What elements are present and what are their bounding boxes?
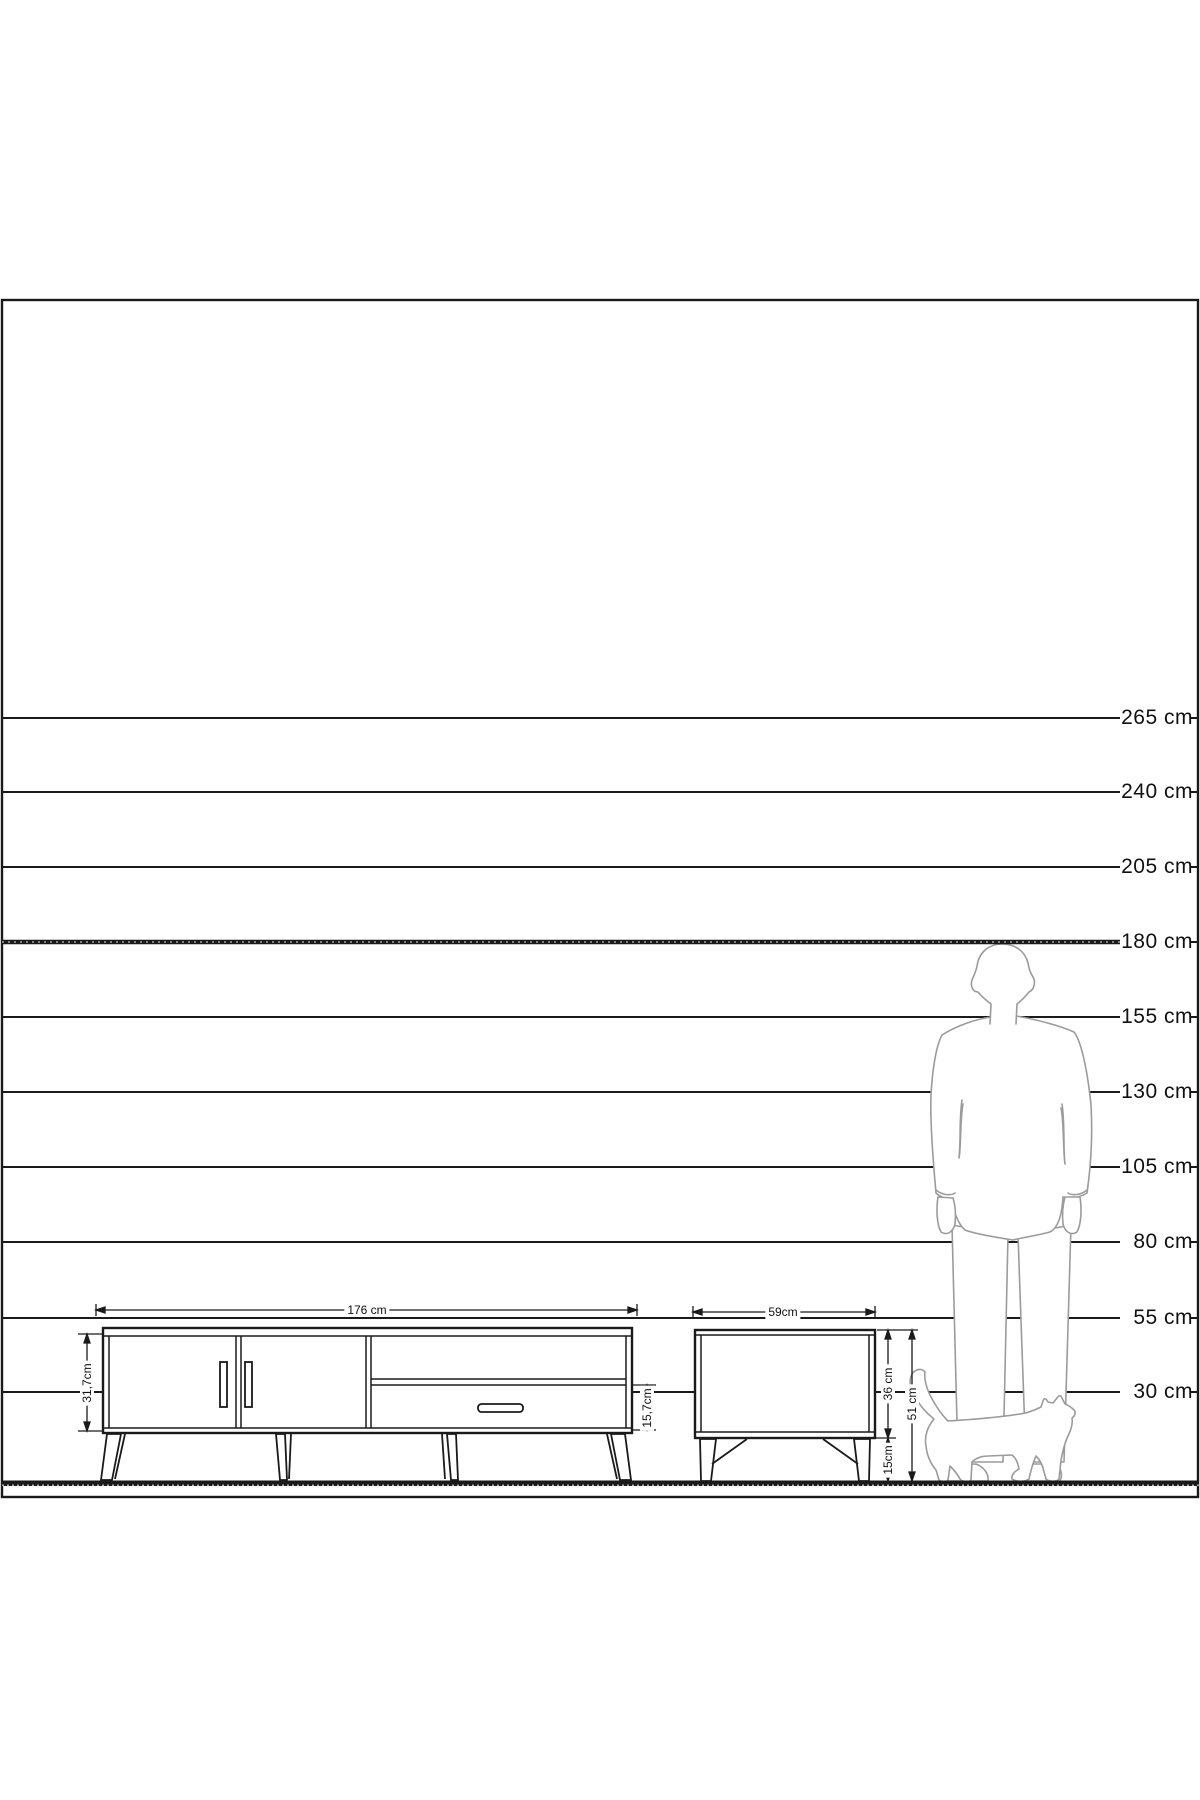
- floor-line: [2, 1481, 1199, 1487]
- side-table-body: [695, 1330, 875, 1438]
- side-table-height-label: 36 cm: [881, 1365, 895, 1404]
- scale-label-205: 205 cm: [1060, 854, 1193, 880]
- man-head: [971, 944, 1034, 1024]
- furniture-dimension-diagram: 265 cm 240 cm 205 cm 180 cm 155 cm 130 c…: [0, 0, 1200, 1800]
- scale-label-105: 105 cm: [1060, 1154, 1193, 1180]
- drawer-handle: [478, 1404, 523, 1412]
- side-table-leg-label: 15cm: [881, 1442, 895, 1477]
- side-table-width-label: 59cm: [765, 1305, 800, 1319]
- tv-stand-drawer-label: 15,7cm: [640, 1385, 654, 1430]
- scale-label-55: 55 cm: [1060, 1305, 1193, 1331]
- scale-label-240: 240 cm: [1060, 779, 1193, 805]
- side-table: [695, 1330, 875, 1481]
- tv-stand-width-label: 176 cm: [344, 1303, 389, 1317]
- tv-stand-height-label: 31,7cm: [80, 1360, 94, 1405]
- door-handle-left: [220, 1362, 227, 1407]
- tv-stand: [101, 1328, 632, 1480]
- scale-label-30: 30 cm: [1060, 1379, 1193, 1405]
- scale-label-80: 80 cm: [1060, 1229, 1193, 1255]
- tv-stand-body: [103, 1328, 632, 1433]
- diagram-canvas: [0, 0, 1200, 1800]
- side-table-legs: [700, 1439, 870, 1481]
- tv-stand-legs: [101, 1434, 631, 1480]
- man-left-hand: [937, 1197, 955, 1234]
- scale-label-265: 265 cm: [1060, 705, 1193, 731]
- scale-label-180: 180 cm: [1060, 929, 1193, 955]
- scale-label-155: 155 cm: [1060, 1004, 1193, 1030]
- door-handle-right: [245, 1362, 252, 1407]
- side-table-total-label: 51 cm: [905, 1385, 919, 1424]
- scale-label-130: 130 cm: [1060, 1079, 1193, 1105]
